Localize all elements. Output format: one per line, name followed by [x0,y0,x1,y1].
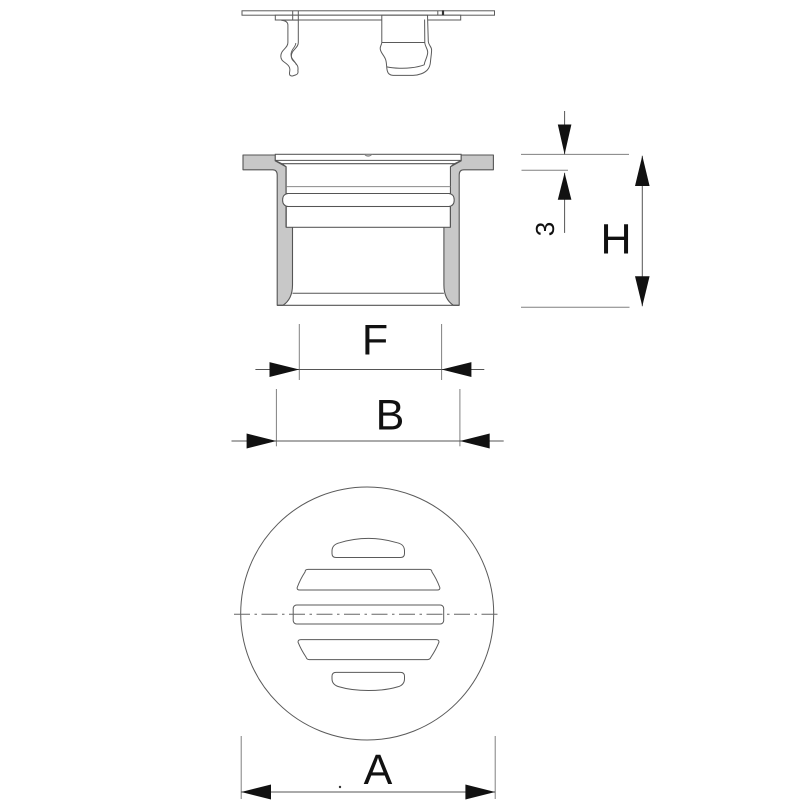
svg-text:B: B [376,391,405,439]
svg-text:F: F [362,317,388,365]
svg-text:H: H [600,215,631,263]
svg-text:A: A [364,746,393,794]
svg-text:3: 3 [530,222,560,236]
